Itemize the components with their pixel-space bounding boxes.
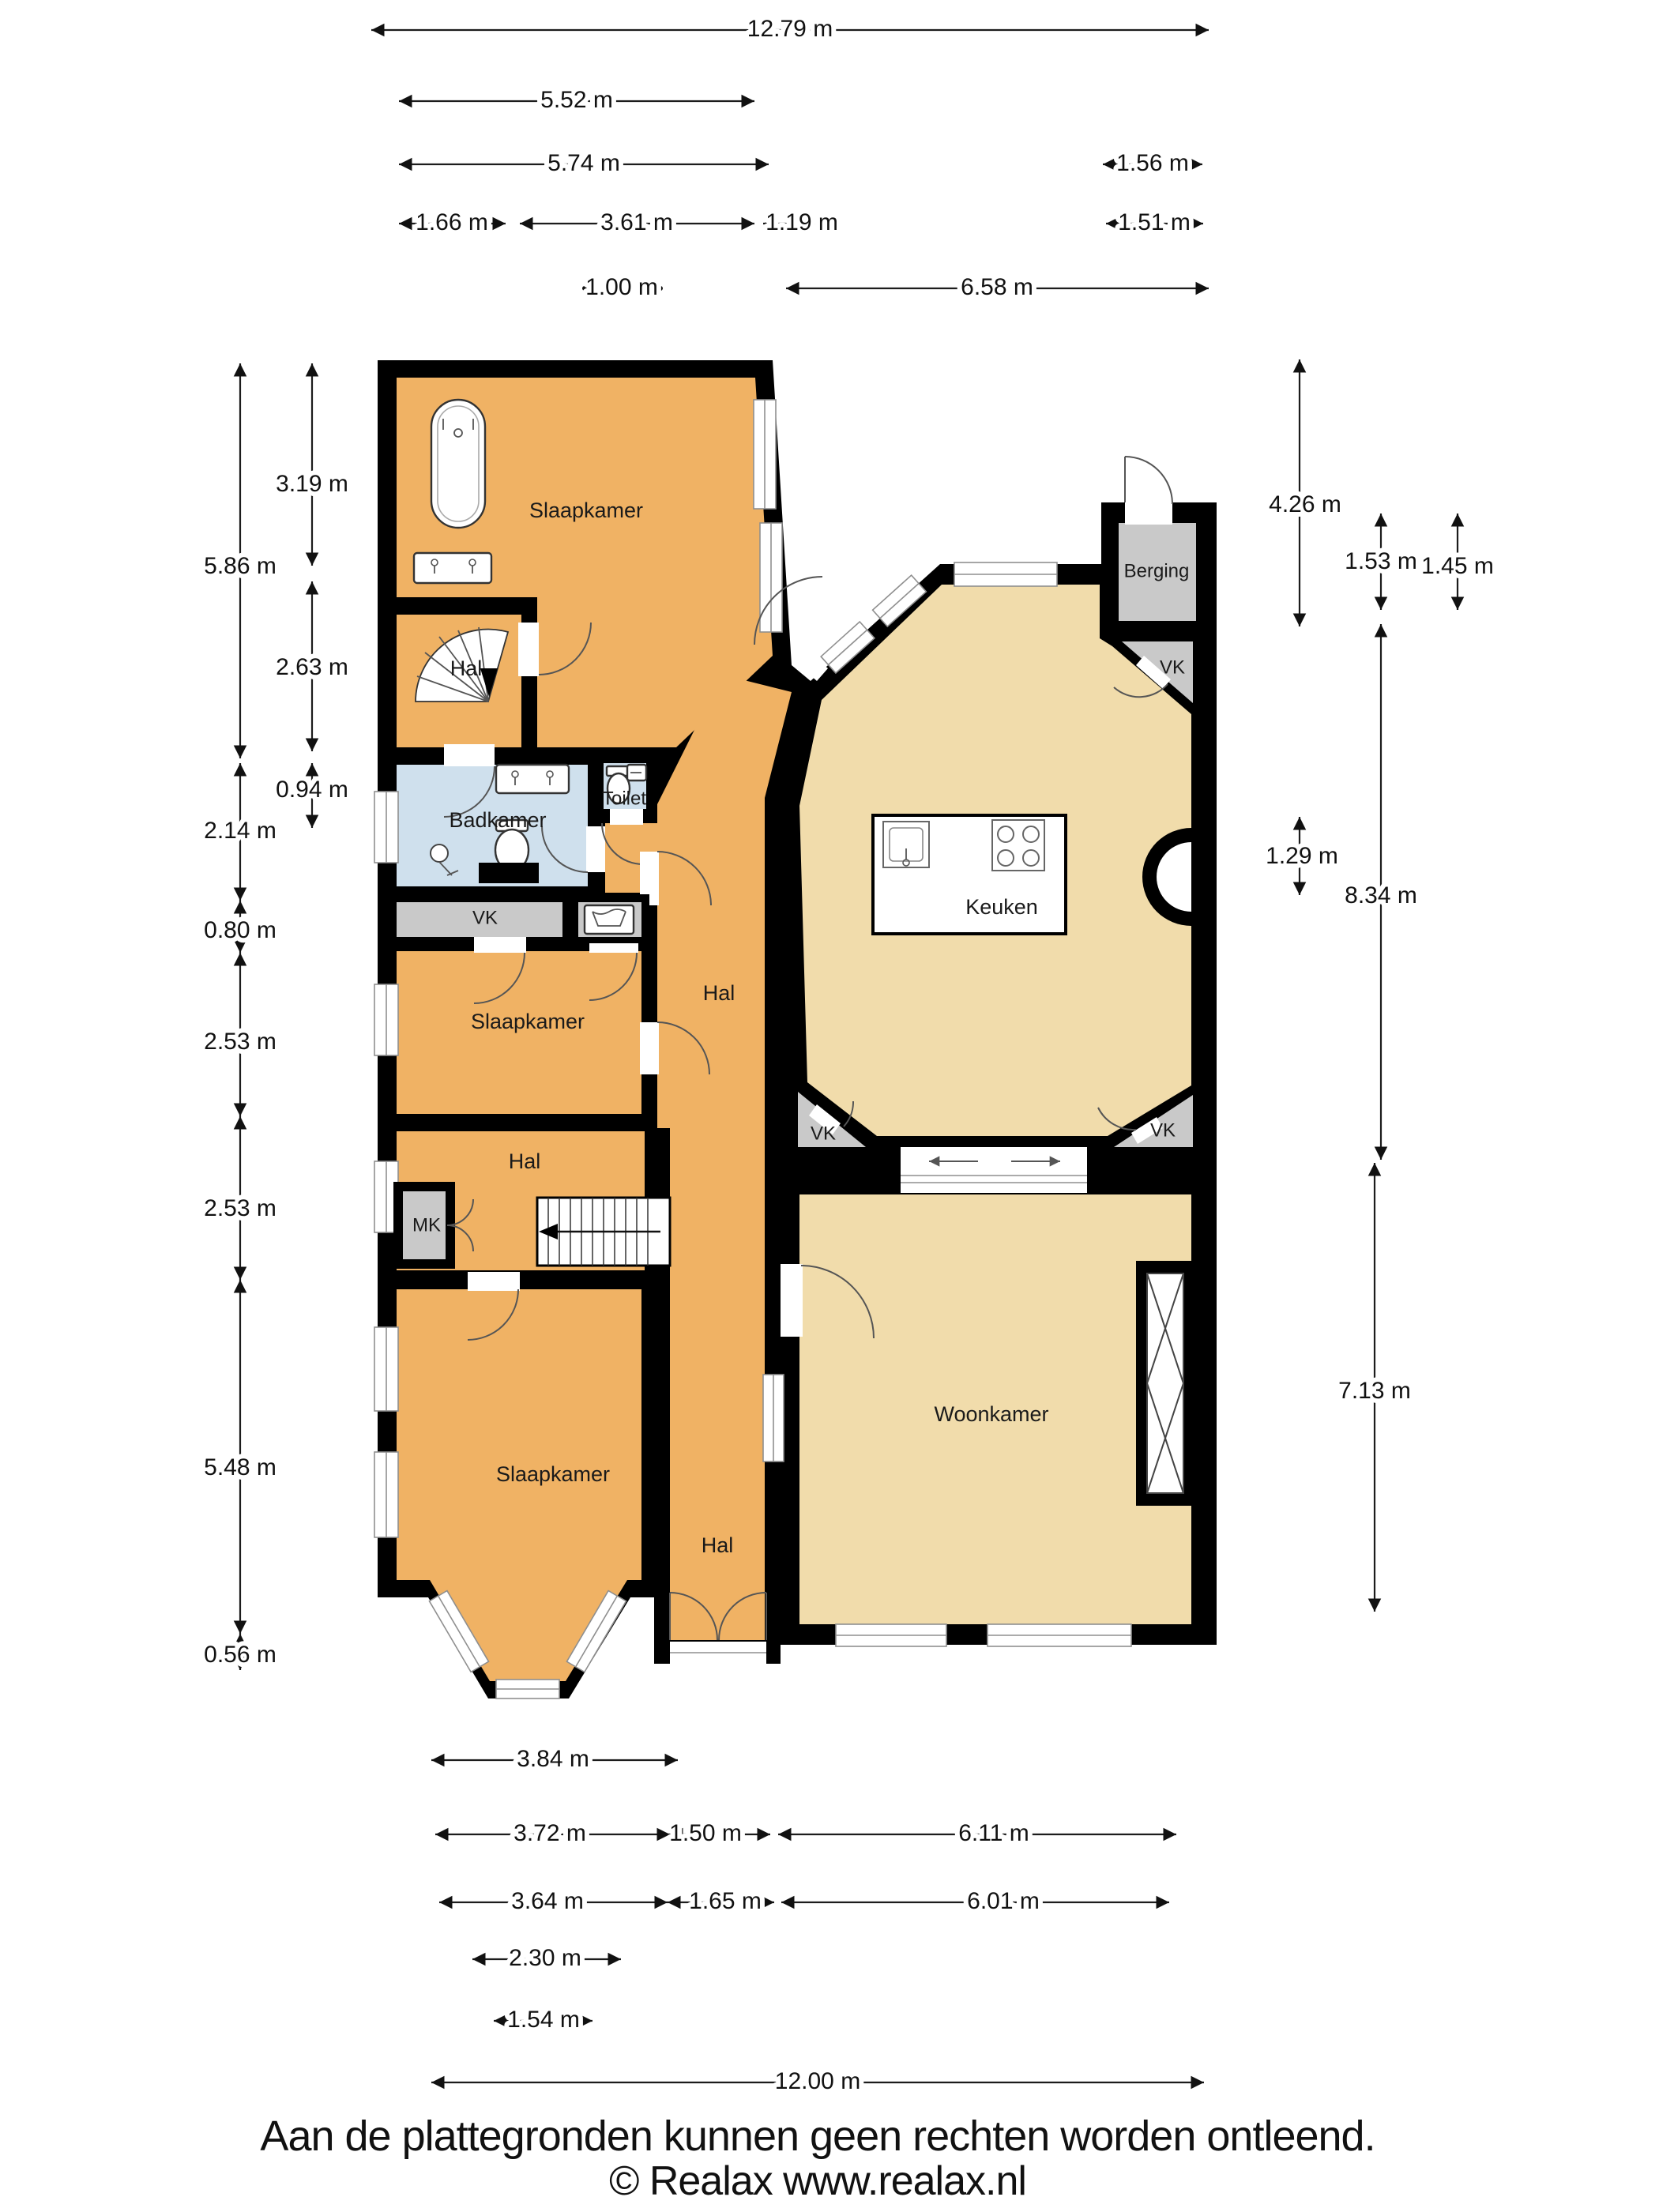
svg-text:12.79 m: 12.79 m xyxy=(747,16,833,42)
dimensions-top: 12.79 m 5.52 m 5.74 m 1.56 m 1.66 m 3.61… xyxy=(371,16,1209,300)
dim-2-30-m: 2.30 m xyxy=(472,1945,621,1971)
floor-plan: Slaapkamer Hal Badkamer Toilet VK Hal Sl… xyxy=(0,0,1659,2212)
dim-3-19-m: 3.19 m xyxy=(276,363,348,566)
label-hal-corridor: Hal xyxy=(703,981,735,1005)
stairs-icon xyxy=(537,1198,670,1266)
partition-wall xyxy=(479,863,539,883)
dim-3-84-m: 3.84 m xyxy=(431,1746,678,1772)
window xyxy=(496,1680,559,1698)
floorplan-page: Slaapkamer Hal Badkamer Toilet VK Hal Sl… xyxy=(0,0,1659,2212)
window xyxy=(374,792,398,863)
label-mk: MK xyxy=(412,1214,441,1236)
svg-text:2.53 m: 2.53 m xyxy=(204,1029,276,1055)
dim-8-34-m: 8.34 m xyxy=(1345,624,1417,1160)
door-opening xyxy=(640,1022,659,1074)
svg-text:1.56 m: 1.56 m xyxy=(1116,150,1189,176)
svg-text:3.19 m: 3.19 m xyxy=(276,471,348,497)
svg-text:2.63 m: 2.63 m xyxy=(276,654,348,680)
door-opening xyxy=(474,937,526,953)
tall-window-icon xyxy=(1136,1261,1194,1506)
svg-text:5.52 m: 5.52 m xyxy=(540,87,613,113)
svg-text:2.53 m: 2.53 m xyxy=(204,1195,276,1221)
footer: Aan de plattegronden kunnen geen rechten… xyxy=(260,2112,1375,2204)
label-hal-bottom: Hal xyxy=(702,1533,734,1557)
dim-1-29-m: 1.29 m xyxy=(1266,817,1338,895)
svg-text:1.45 m: 1.45 m xyxy=(1421,553,1494,579)
footer-copyright: © Realax www.realax.nl xyxy=(609,2158,1026,2204)
label-woonkamer: Woonkamer xyxy=(934,1402,1048,1426)
door-opening xyxy=(444,744,495,766)
svg-text:0.56 m: 0.56 m xyxy=(204,1642,276,1668)
label-hal-spiral: Hal xyxy=(450,656,483,680)
label-toilet: Toilet xyxy=(602,788,646,809)
window xyxy=(760,523,782,632)
svg-text:5.74 m: 5.74 m xyxy=(547,150,620,176)
dimensions-bottom: 3.84 m 3.72 m 1.50 m 6.11 m 3.64 m 1.65 … xyxy=(431,1746,1204,2094)
svg-text:1.51 m: 1.51 m xyxy=(1118,209,1191,235)
dim-1-54-m: 1.54 m xyxy=(494,2007,592,2033)
dim-1-50-m: 1.50 m xyxy=(669,1820,770,1846)
window xyxy=(987,1624,1131,1646)
svg-text:1.00 m: 1.00 m xyxy=(585,274,658,300)
window xyxy=(954,562,1057,586)
dim-2-14-m: 2.14 m xyxy=(204,763,276,901)
svg-text:2.30 m: 2.30 m xyxy=(509,1945,581,1971)
bathtub-icon xyxy=(431,400,485,528)
window xyxy=(374,1452,398,1537)
svg-text:6.01 m: 6.01 m xyxy=(967,1888,1040,1914)
dim-1-51-m: 1.51 m xyxy=(1106,209,1203,235)
label-slaapkamer-top: Slaapkamer xyxy=(529,498,643,522)
washbasin-icon xyxy=(496,765,569,793)
svg-text:1.66 m: 1.66 m xyxy=(416,209,488,235)
window xyxy=(374,984,398,1055)
svg-text:1.50 m: 1.50 m xyxy=(669,1820,742,1846)
svg-text:1.54 m: 1.54 m xyxy=(507,2007,580,2033)
dim-7-13-m: 7.13 m xyxy=(1338,1163,1411,1612)
label-vk-topright: VK xyxy=(1160,656,1185,678)
svg-text:5.48 m: 5.48 m xyxy=(204,1454,276,1480)
dim-4-26-m: 4.26 m xyxy=(1269,359,1341,626)
dim-2-63-m: 2.63 m xyxy=(276,581,348,751)
dim-0-80-m: 0.80 m xyxy=(204,901,276,953)
svg-text:3.61 m: 3.61 m xyxy=(600,209,673,235)
dim-6-58-m: 6.58 m xyxy=(786,274,1209,300)
washbasin-icon xyxy=(414,553,491,583)
footer-disclaimer: Aan de plattegronden kunnen geen rechten… xyxy=(260,2112,1375,2160)
svg-text:1.65 m: 1.65 m xyxy=(689,1888,762,1914)
svg-text:3.72 m: 3.72 m xyxy=(513,1820,586,1846)
dim-2-53-m-a: 2.53 m xyxy=(204,953,276,1116)
svg-text:6.11 m: 6.11 m xyxy=(958,1820,1029,1846)
door-opening xyxy=(468,1272,520,1291)
svg-text:3.64 m: 3.64 m xyxy=(511,1888,584,1914)
corner-basin-icon xyxy=(627,765,646,781)
dim-1-66-m: 1.66 m xyxy=(399,209,506,235)
dim-0-94-m: 0.94 m xyxy=(276,763,348,828)
svg-text:7.13 m: 7.13 m xyxy=(1338,1378,1411,1404)
dim-1-00-m: 1.00 m xyxy=(582,274,663,300)
svg-text:8.34 m: 8.34 m xyxy=(1345,882,1417,908)
dimensions-right: 4.26 m 1.53 m 1.45 m 1.29 m 8.34 m 7.13 … xyxy=(1266,359,1494,1612)
svg-text:1.29 m: 1.29 m xyxy=(1266,843,1338,869)
dimensions-left: 3.19 m 5.86 m 2.63 m 0.94 m 2.14 m 0.80 … xyxy=(204,363,348,1670)
window xyxy=(763,1375,784,1461)
washing-machine-icon xyxy=(570,894,649,943)
svg-text:4.26 m: 4.26 m xyxy=(1269,491,1341,517)
dim-12-79-m: 12.79 m xyxy=(371,16,1209,42)
label-hal-mid: Hal xyxy=(509,1149,541,1173)
label-keuken: Keuken xyxy=(965,895,1038,919)
dim-0-56-m: 0.56 m xyxy=(204,1634,276,1670)
svg-text:0.80 m: 0.80 m xyxy=(204,917,276,943)
dim-1-19-m: 1.19 m xyxy=(763,209,841,235)
svg-text:6.58 m: 6.58 m xyxy=(961,274,1033,300)
dim-3-72-m: 3.72 m xyxy=(435,1820,670,1846)
dim-5-86-m: 5.86 m xyxy=(204,363,276,758)
svg-text:1.19 m: 1.19 m xyxy=(766,209,838,235)
label-berging: Berging xyxy=(1124,560,1190,581)
dim-1-53-m: 1.53 m xyxy=(1345,513,1417,610)
svg-text:12.00 m: 12.00 m xyxy=(775,2068,860,2094)
door-opening xyxy=(518,623,539,676)
svg-text:0.94 m: 0.94 m xyxy=(276,777,348,803)
dim-5-52-m: 5.52 m xyxy=(399,87,754,113)
dim-3-64-m: 3.64 m xyxy=(439,1888,668,1914)
svg-text:2.14 m: 2.14 m xyxy=(204,818,276,844)
door-arc xyxy=(1125,457,1172,504)
dim-6-01-m: 6.01 m xyxy=(781,1888,1169,1914)
label-vk-bottomleft: VK xyxy=(811,1123,836,1144)
dim-1-45-m: 1.45 m xyxy=(1421,513,1494,610)
label-vk-bottomright: VK xyxy=(1150,1119,1176,1141)
window xyxy=(754,400,776,509)
door-opening xyxy=(610,809,643,825)
dim-5-48-m: 5.48 m xyxy=(204,1280,276,1634)
sliding-door xyxy=(901,1147,1087,1193)
dim-6-11-m: 6.11 m xyxy=(778,1820,1176,1846)
label-badkamer: Badkamer xyxy=(449,808,546,832)
svg-text:1.53 m: 1.53 m xyxy=(1345,548,1417,574)
dim-1-65-m: 1.65 m xyxy=(668,1888,774,1914)
svg-text:3.84 m: 3.84 m xyxy=(517,1746,589,1772)
door-opening xyxy=(1125,502,1172,525)
window xyxy=(836,1624,946,1646)
dim-5-74-m: 5.74 m xyxy=(399,150,769,176)
dim-12-00-m: 12.00 m xyxy=(431,2068,1204,2094)
label-vk-left: VK xyxy=(472,907,498,928)
label-slaapkamer-mid: Slaapkamer xyxy=(471,1010,585,1033)
dim-2-53-m-b: 2.53 m xyxy=(204,1116,276,1280)
label-slaapkamer-bottom: Slaapkamer xyxy=(496,1462,610,1486)
dim-1-56-m: 1.56 m xyxy=(1103,150,1202,176)
dim-3-61-m: 3.61 m xyxy=(520,209,754,235)
window xyxy=(374,1327,398,1411)
door-opening xyxy=(781,1264,803,1337)
svg-text:5.86 m: 5.86 m xyxy=(204,553,276,579)
door-opening xyxy=(586,826,605,872)
